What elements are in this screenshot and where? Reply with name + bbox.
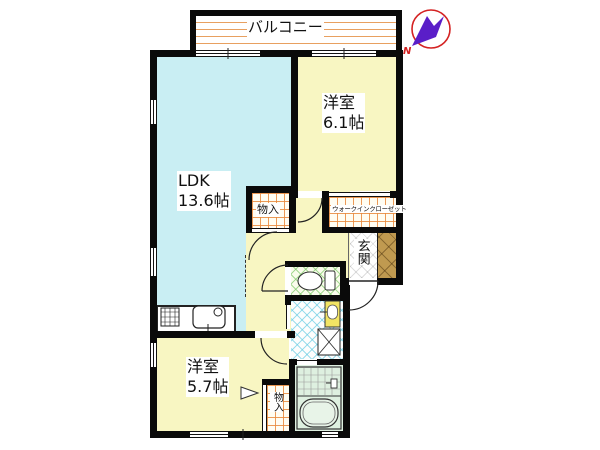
wall — [150, 431, 350, 438]
doorway-bedroom-lower — [255, 331, 287, 338]
wall — [291, 50, 298, 198]
room-size: 6.1帖 — [323, 113, 364, 133]
kitchen-counter — [157, 305, 236, 334]
window — [190, 431, 228, 438]
shoe-cabinet — [377, 232, 398, 280]
wall — [287, 331, 295, 338]
storage-upper-door — [252, 228, 289, 233]
room-size: 5.7帖 — [187, 377, 228, 397]
balcony-window — [196, 50, 260, 57]
storage-lower-label: 物入 — [270, 392, 283, 412]
wall — [285, 295, 291, 305]
bedroom-upper-label: 洋室 6.1帖 — [322, 93, 365, 133]
ldk-label: LDK 13.6帖 — [177, 171, 231, 211]
washroom-floor — [291, 301, 343, 359]
entrance-step-line — [348, 233, 349, 278]
wall — [285, 295, 346, 301]
room-name: 洋室 — [323, 93, 364, 113]
walkin-closet-label: ウォークインクローゼット — [331, 205, 407, 213]
ldk-hall-open-boundary — [245, 255, 246, 297]
bathroom-door — [297, 360, 317, 364]
wall — [343, 278, 350, 438]
balcony-label: バルコニー — [247, 18, 324, 37]
wall — [322, 227, 403, 233]
storage-lower-door — [262, 385, 267, 431]
room-name: 洋室 — [187, 357, 228, 377]
toilet-floor — [291, 267, 340, 295]
room-name: LDK — [178, 171, 230, 191]
bathroom-floor — [295, 365, 343, 431]
wall — [289, 359, 295, 438]
compass-needle — [412, 16, 444, 46]
window — [150, 248, 157, 276]
door-arc-entrance — [349, 281, 378, 310]
wall — [340, 261, 346, 297]
bathroom-window — [322, 431, 338, 438]
wall — [289, 186, 296, 233]
wall — [377, 278, 403, 285]
floor-plan: N バルコニー 洋室 6.1帖 LDK 13.6帖 洋室 5.7帖 物入 ウォー… — [0, 0, 600, 450]
wall — [190, 10, 402, 16]
wall — [289, 261, 346, 267]
wall — [390, 191, 396, 198]
wall — [396, 50, 403, 278]
washroom-sliding-door — [286, 305, 290, 329]
walkin-closet-sliding-door — [329, 192, 390, 197]
bedroom-lower-label: 洋室 5.7帖 — [186, 357, 229, 397]
wall — [150, 331, 255, 338]
doorway-entrance — [349, 278, 377, 285]
balcony-window — [312, 50, 376, 57]
entrance-label: 玄関 — [354, 239, 370, 265]
window — [150, 100, 157, 124]
room-size: 13.6帖 — [178, 191, 230, 211]
compass-n-label: N — [403, 46, 412, 57]
wall — [246, 186, 252, 233]
compass-ring — [412, 10, 450, 48]
wall — [317, 359, 345, 365]
doorway-bedroom-upper — [298, 191, 322, 198]
doorway-toilet — [285, 267, 291, 295]
window — [150, 343, 157, 367]
compass: N — [403, 10, 450, 57]
storage-upper-label: 物入 — [256, 203, 280, 217]
